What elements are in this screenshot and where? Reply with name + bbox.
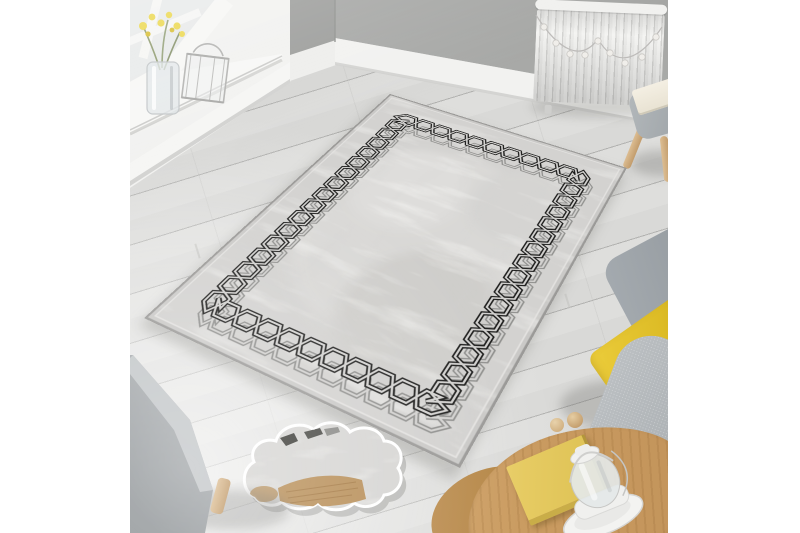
product-photo-canvas <box>0 0 800 533</box>
table-foot-knob <box>550 418 564 432</box>
hurricane-lantern <box>555 438 668 533</box>
living-room-photo <box>130 0 668 533</box>
armchair-right-foot <box>567 412 583 428</box>
